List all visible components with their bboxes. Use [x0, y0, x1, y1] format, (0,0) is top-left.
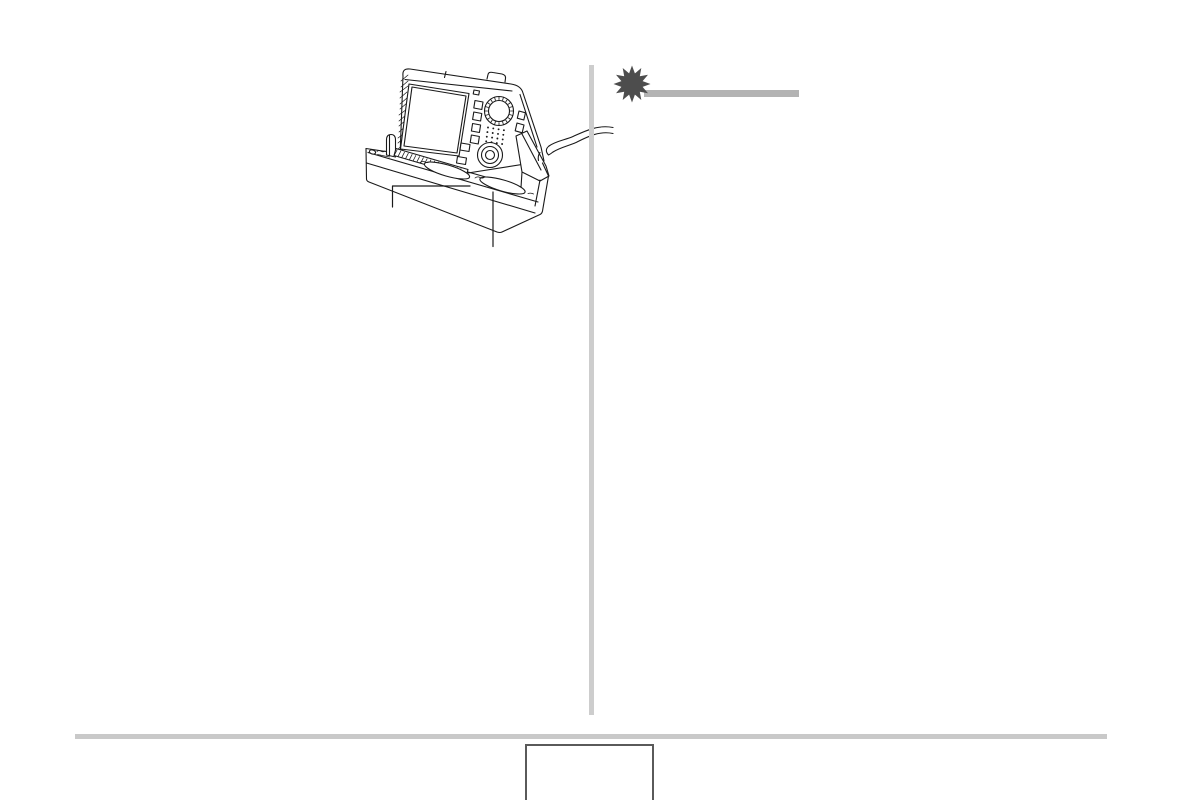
footer-rule — [75, 734, 1107, 739]
indicator-led — [473, 90, 479, 95]
page-number-box — [525, 744, 654, 800]
callout-lines — [393, 186, 494, 247]
section-header-rule — [644, 90, 799, 97]
mode-dial — [485, 97, 514, 126]
cradle-button-right — [478, 174, 526, 198]
four-way-controller — [478, 143, 503, 168]
callout-line-left — [393, 186, 471, 207]
column-divider — [589, 65, 594, 715]
camera-cradle-illustration — [358, 48, 628, 258]
cable-squiggle — [538, 127, 613, 161]
starburst-shape — [614, 66, 651, 103]
line-art-root — [366, 69, 613, 247]
important-starburst-icon — [613, 65, 651, 103]
manual-page — [0, 0, 1183, 800]
